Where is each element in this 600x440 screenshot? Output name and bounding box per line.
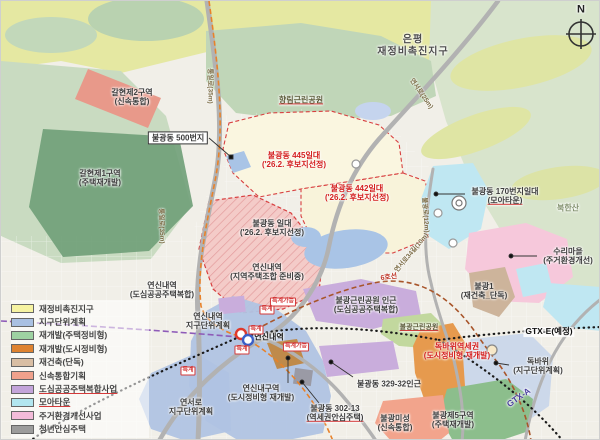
legend-swatch <box>11 331 34 340</box>
legend: 재정비촉진지구 지구단위계획 재개발(주택정비형) 재개발(도시정비형) 재건축… <box>11 300 149 438</box>
map-canvas: N 은평 재정비촉진지구 갈현제2구역 (신속통합) 불광동 500번지 갈현제… <box>0 0 600 440</box>
legend-item-promotion: 재정비촉진지구 <box>11 302 149 315</box>
zone-purple-small <box>218 296 246 315</box>
legend-item-residential-env: 주거환경개선사업 <box>11 409 149 422</box>
legend-item-redev-urban: 재개발(도시정비형) <box>11 342 149 355</box>
legend-swatch <box>11 398 34 407</box>
legend-swatch <box>11 411 34 420</box>
legend-item-redev-housing: 재개발(주택정비형) <box>11 329 149 342</box>
legend-item-rebuild: 재건축(단독) <box>11 356 149 369</box>
legend-swatch <box>11 304 34 313</box>
symbol-circle <box>452 196 466 210</box>
zone-miseong <box>375 395 449 440</box>
legend-item-youth-housing: 청년안심주택 <box>11 423 149 436</box>
legend-swatch <box>11 318 34 327</box>
legend-swatch <box>11 385 34 394</box>
yeonsinnae-station-symbol-blue <box>243 335 253 345</box>
legend-swatch <box>11 358 34 367</box>
legend-swatch <box>11 425 34 434</box>
legend-item-moatown: 모아타운 <box>11 396 149 409</box>
legend-item-public-housing: 도심공공주택복합사업 <box>11 382 149 395</box>
zone-blue-top <box>355 102 391 120</box>
legend-item-fast-track: 신속통합기획 <box>11 369 149 382</box>
legend-swatch <box>11 344 34 353</box>
legend-item-district-plan: 지구단위계획 <box>11 315 149 328</box>
dokbawi-station-circle <box>487 345 497 355</box>
legend-swatch <box>11 371 34 380</box>
